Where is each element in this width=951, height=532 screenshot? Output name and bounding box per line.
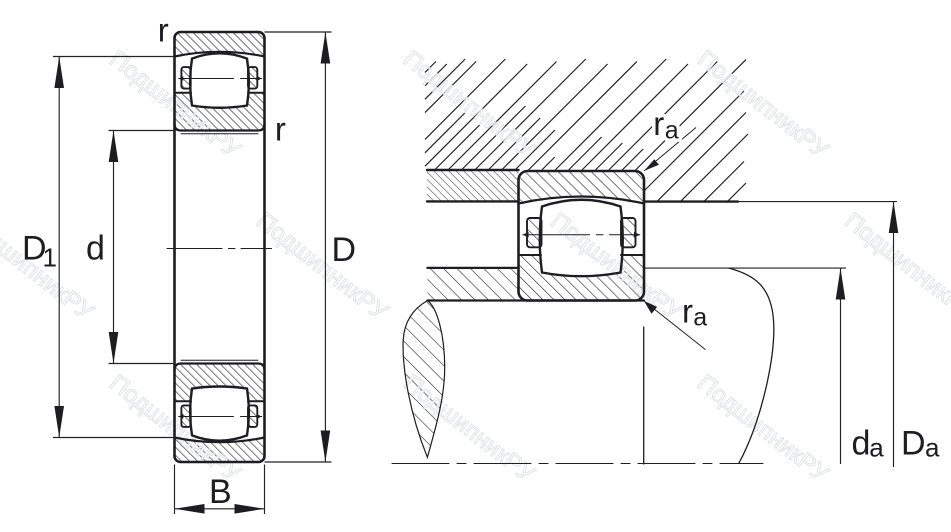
svg-text:ПодшипникРУ: ПодшипникРУ — [251, 207, 392, 326]
svg-text:1: 1 — [43, 243, 57, 273]
svg-text:a: a — [925, 433, 940, 463]
svg-text:B: B — [209, 473, 232, 511]
svg-text:d: d — [852, 424, 871, 462]
svg-text:a: a — [693, 304, 707, 332]
svg-text:r: r — [653, 105, 664, 142]
svg-text:D: D — [332, 231, 357, 269]
svg-text:ПодшипникРУ: ПодшипникРУ — [692, 45, 833, 164]
svg-text:r: r — [275, 110, 286, 147]
svg-text:d: d — [86, 230, 105, 268]
svg-text:a: a — [665, 116, 679, 144]
svg-text:r: r — [158, 11, 169, 48]
svg-text:D: D — [901, 424, 926, 462]
svg-text:ПодшипникРУ: ПодшипникРУ — [398, 45, 539, 164]
svg-text:a: a — [869, 433, 884, 463]
svg-text:ПодшипникРУ: ПодшипникРУ — [692, 369, 833, 488]
svg-text:r: r — [682, 293, 693, 330]
